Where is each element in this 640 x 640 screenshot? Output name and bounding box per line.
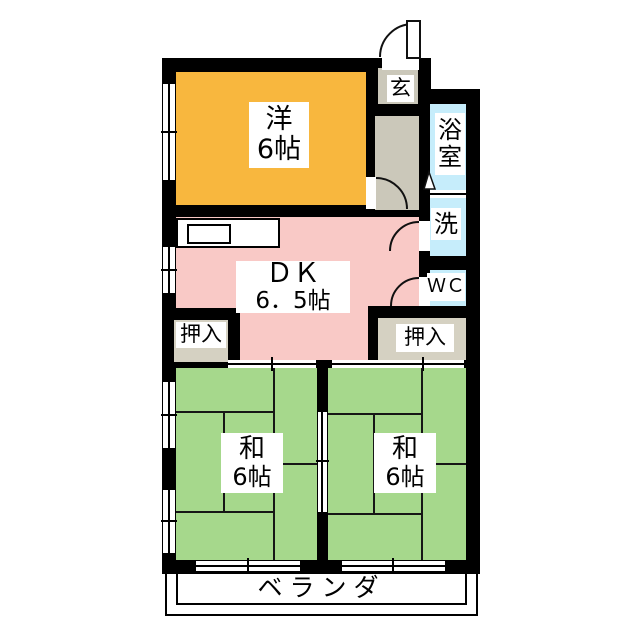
japanese-room-right-label: 和 6帖 (374, 433, 436, 493)
toilet-name: ＷＣ (427, 276, 465, 297)
washroom-doorway-gap (419, 221, 430, 251)
toilet-label: ＷＣ (427, 273, 465, 301)
closet-left-label: 押入 (176, 322, 226, 348)
exterior-notch (431, 58, 480, 89)
bathroom-sliding-door-line (430, 193, 466, 195)
sliding-door-tick (316, 460, 329, 462)
tatami-line (176, 411, 274, 413)
sliding-door-line (332, 363, 464, 365)
window-tick (161, 269, 177, 271)
western-room-name: 洋 (266, 105, 293, 135)
tatami-line (328, 513, 422, 515)
closet-right-label: 押入 (396, 324, 454, 352)
window-tick (161, 414, 177, 416)
dining-kitchen-label: ＤＫ 6．5帖 (236, 261, 350, 313)
entrance-door-leaf (407, 21, 420, 58)
hallway (375, 116, 419, 210)
washroom-label: 洗 (431, 208, 461, 240)
japanese-room-left-label: 和 6帖 (221, 433, 283, 493)
entrance-doorway-gap (382, 58, 419, 70)
tatami-line (328, 413, 422, 415)
japanese-left-name: 和 (239, 435, 265, 464)
entrance-name: 玄 (390, 77, 411, 101)
sliding-door-line (321, 412, 323, 512)
veranda-name: ベランダ (257, 574, 385, 602)
japanese-left-size: 6帖 (232, 464, 271, 491)
bathroom-name-2: 室 (438, 144, 462, 171)
kitchen-sink (187, 224, 231, 244)
bathroom-label: 浴 室 (435, 113, 465, 175)
veranda-label: ベランダ (165, 574, 478, 602)
closet-left-name: 押入 (180, 323, 222, 347)
window-tick (161, 520, 177, 522)
western-room-size: 6帖 (257, 135, 301, 165)
tatami-line (176, 511, 274, 513)
window-tick (247, 558, 249, 573)
japanese-right-name: 和 (392, 435, 418, 464)
window-tick (161, 131, 177, 133)
dk-size: 6．5帖 (255, 289, 330, 315)
dk-name: ＤＫ (266, 259, 320, 289)
closet-right-name: 押入 (404, 326, 446, 350)
hall-doorway-gap (366, 177, 376, 209)
entrance-door-arc (380, 24, 413, 57)
japanese-right-size: 6帖 (385, 464, 424, 491)
entrance-label: 玄 (387, 75, 414, 102)
western-room-label: 洋 6帖 (249, 102, 309, 168)
floor-plan: 洋 6帖 ＤＫ 6．5帖 浴 室 洗 ＷＣ 玄 押入 押入 和 6帖 和 6帖 … (0, 0, 640, 640)
washroom-name: 洗 (434, 211, 458, 238)
window-tick (392, 558, 394, 573)
bathroom-name-1: 浴 (438, 117, 462, 144)
